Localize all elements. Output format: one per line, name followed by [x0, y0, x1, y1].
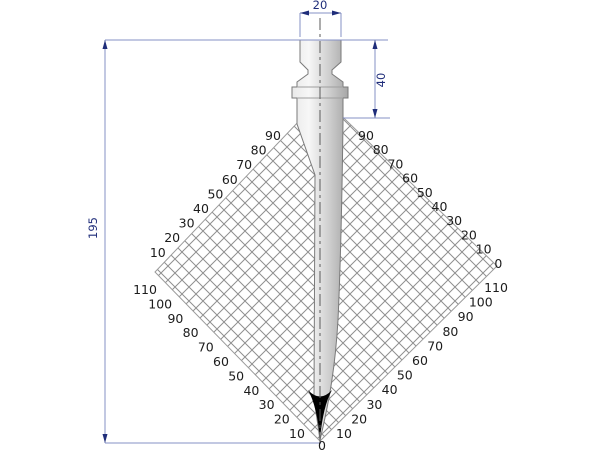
angle-label-lower_left-40: 40 [243, 383, 259, 398]
angle-label-lower_right-80: 80 [442, 324, 458, 339]
angle-label-upper_right-60: 60 [402, 171, 418, 186]
angle-label-upper_left-90: 90 [265, 128, 281, 143]
arrow-down [103, 434, 108, 443]
angle-label-lower_left-30: 30 [259, 397, 275, 412]
technical-drawing-canvas: 20 195 40 908070605040302010110100908070… [0, 0, 600, 450]
angle-label-upper_left-30: 30 [179, 216, 195, 231]
angle-label-lower_left-110: 110 [133, 282, 157, 297]
angle-label-upper_right-30: 30 [446, 213, 462, 228]
angle-label-upper_right-70: 70 [387, 156, 403, 171]
angle-label-lower_left-50: 50 [228, 368, 244, 383]
angle-label-lower_left-100: 100 [148, 296, 172, 311]
angle-label-upper_left-50: 50 [207, 186, 223, 201]
angle-label-lower_right-110: 110 [484, 280, 508, 295]
top-width-label: 20 [313, 0, 328, 12]
angle-label-lower_right-20: 20 [351, 411, 367, 426]
angle-label-lower_left-20: 20 [274, 412, 290, 427]
angle-label-upper_left-70: 70 [236, 157, 252, 172]
angle-label-lower_left-60: 60 [213, 354, 229, 369]
angle-label-upper_left-20: 20 [164, 230, 180, 245]
arrow-up [103, 40, 108, 49]
angle-label-upper_left-80: 80 [251, 143, 267, 158]
angle-label-upper_left-60: 60 [222, 172, 238, 187]
angle-label-upper_right-40: 40 [432, 199, 448, 214]
angle-label-upper_right-0: 0 [494, 256, 502, 271]
angle-label-upper_right-90: 90 [358, 128, 374, 143]
angle-label-lower_right-70: 70 [427, 338, 443, 353]
arrow-right [332, 11, 341, 16]
angle-label-upper_right-20: 20 [461, 227, 477, 242]
angle-label-lower_right-10: 10 [336, 426, 352, 441]
angle-label-lower_left-70: 70 [198, 340, 214, 355]
angle-label-upper_right-50: 50 [417, 185, 433, 200]
angle-label-lower_right-100: 100 [469, 295, 493, 310]
angle-label-lower_right-40: 40 [382, 382, 398, 397]
angle-label-lower_right-60: 60 [412, 353, 428, 368]
angle-label-lower_right-90: 90 [458, 309, 474, 324]
total-height-label: 195 [86, 217, 100, 239]
arrow-down [373, 109, 378, 118]
angle-label-upper_right-10: 10 [476, 242, 492, 257]
angle-label-bottom-zero: 0 [318, 438, 326, 450]
angle-label-lower_right-30: 30 [366, 397, 382, 412]
dimension-head-height: 40 [343, 40, 390, 118]
angle-label-lower_left-10: 10 [289, 426, 305, 441]
angle-label-upper_right-80: 80 [373, 142, 389, 157]
angle-label-lower_right-50: 50 [397, 368, 413, 383]
arrow-up [373, 40, 378, 49]
head-height-label: 40 [374, 73, 388, 88]
angle-label-lower_left-80: 80 [183, 325, 199, 340]
arrow-left [300, 11, 309, 16]
angle-label-upper_left-40: 40 [193, 201, 209, 216]
angle-label-lower_left-90: 90 [167, 311, 183, 326]
angle-label-upper_left-10: 10 [150, 245, 166, 260]
punch-drawing-svg: 20 195 40 908070605040302010110100908070… [0, 0, 600, 450]
